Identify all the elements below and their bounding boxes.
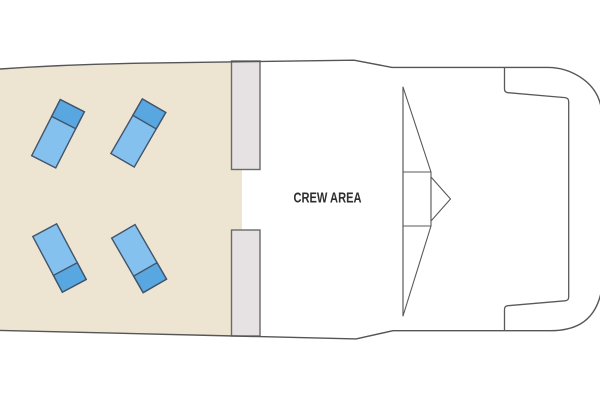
- svg-text:CREW AREA: CREW AREA: [294, 190, 362, 207]
